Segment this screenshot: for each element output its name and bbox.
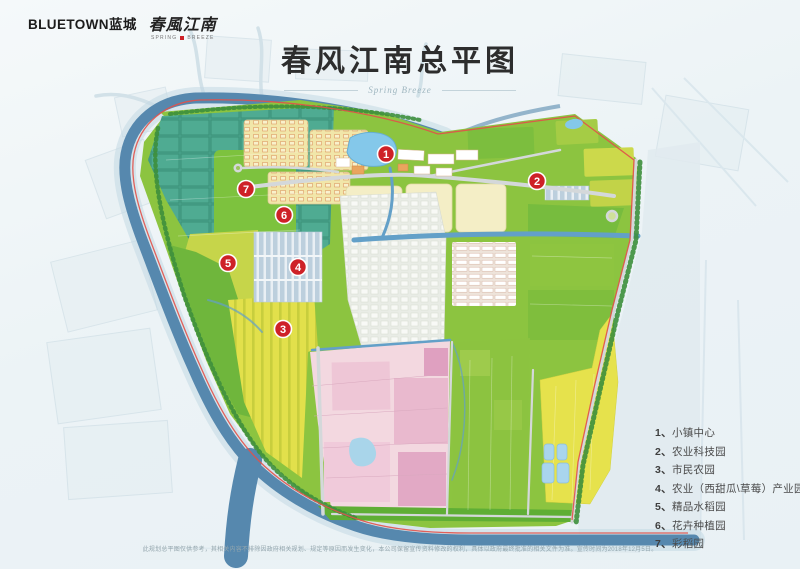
footer: 此规划总平图仅供参考，其相关内容不排除因政府相关规划、规定等原因而发生变化，本公… [0, 538, 800, 556]
legend-item-number: 2、 [655, 444, 672, 459]
page-title: 春风江南总平图 [0, 36, 800, 80]
svg-text:1: 1 [383, 149, 389, 161]
svg-text:5: 5 [225, 258, 231, 270]
legend-item-6: 6、 花卉种植园 [655, 518, 800, 537]
disclaimer-text: 此规划总平图仅供参考，其相关内容不排除因政府相关规划、规定等原因而发生变化，本公… [143, 547, 658, 553]
legend-item-number: 1、 [655, 425, 672, 440]
map-marker-7: 7 [238, 181, 255, 198]
legend-item-5: 5、 精品水稻园 [655, 499, 800, 518]
title-block: 春风江南总平图 Spring Breeze [0, 36, 800, 95]
legend-item-4: 4、 农业（西甜瓜\草莓）产业园 [655, 481, 800, 500]
legend: 1、 小镇中心 2、 农业科技园 3、 市民农园 4、 农业（西甜瓜\草莓）产业… [655, 425, 800, 555]
brand-logo-text: BLUETOWN蓝城 [28, 13, 137, 33]
svg-text:4: 4 [295, 262, 302, 274]
title-script-line: Spring Breeze [0, 85, 800, 95]
svg-text:3: 3 [280, 324, 286, 336]
title-rule-left [284, 90, 358, 91]
legend-item-number: 5、 [655, 499, 672, 514]
legend-item-label: 农业（西甜瓜\草莓）产业园 [672, 481, 800, 496]
brand-calligraphy-text: 春風江南 [149, 11, 217, 35]
map-marker-1: 1 [378, 146, 395, 163]
legend-item-2: 2、 农业科技园 [655, 444, 800, 463]
title-script-text: Spring Breeze [368, 85, 431, 95]
map-marker-5: 5 [220, 255, 237, 272]
legend-item-number: 4、 [655, 481, 672, 496]
poster-page: 1234567 BLUETOWN蓝城 春風江南 SPRING BREEZE 春风… [0, 0, 800, 569]
svg-text:2: 2 [534, 176, 540, 188]
legend-item-label: 市民农园 [672, 462, 715, 477]
legend-item-label: 花卉种植园 [672, 518, 726, 533]
legend-item-number: 6、 [655, 518, 672, 533]
legend-item-label: 小镇中心 [672, 425, 715, 440]
legend-item-1: 1、 小镇中心 [655, 425, 800, 444]
legend-item-3: 3、 市民农园 [655, 462, 800, 481]
legend-item-label: 精品水稻园 [672, 499, 726, 514]
legend-item-label: 农业科技园 [672, 444, 726, 459]
svg-text:6: 6 [281, 210, 287, 222]
map-marker-2: 2 [529, 173, 546, 190]
map-marker-4: 4 [290, 259, 307, 276]
svg-text:7: 7 [243, 184, 249, 196]
legend-item-number: 3、 [655, 462, 672, 477]
map-marker-3: 3 [275, 321, 292, 338]
title-rule-right [442, 90, 516, 91]
roundabout-east [607, 211, 617, 221]
map-marker-6: 6 [276, 207, 293, 224]
